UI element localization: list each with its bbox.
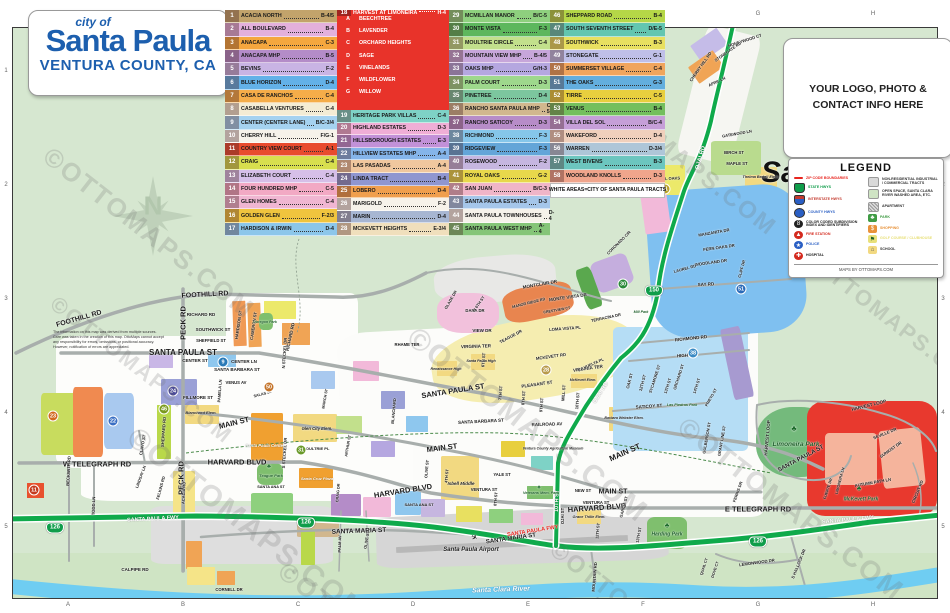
index-row-leader (409, 223, 431, 232)
index-number: 8 (230, 106, 233, 112)
index-row-number: 3 (225, 37, 239, 49)
index-row-number: 51 (550, 76, 564, 88)
map-label: SANTA PAULA ST (149, 349, 217, 357)
index-row: 24LINDA TRACTB-4 (337, 173, 449, 186)
subdivision-number-badge: 9 (218, 357, 229, 368)
index-row-ref: D-3 (538, 196, 550, 208)
index-row: 45SANTA PAULA WEST MHPA-4 (449, 223, 550, 236)
map-label: Limoneira Park (773, 442, 820, 449)
index-row-number: 11 (225, 143, 239, 155)
index-row-name: ANACAPA (239, 37, 267, 49)
index-row-ref: D-4 (325, 76, 337, 88)
index-row-name: OAKS MHP (463, 63, 494, 75)
legend-item: ★POLICE (794, 241, 864, 249)
index-row-name: WOODLAND KNOLLS (564, 170, 621, 182)
legend-item: ZIP CODE BOUNDARIES (794, 177, 864, 181)
index-row-number: 6 (225, 76, 239, 88)
index-row-ref: A-4 (539, 223, 550, 235)
index-row-leader (592, 143, 648, 152)
index-note: WHITE AREAS=CITY OF SANTA PAULA TRACTS (550, 183, 665, 198)
index-row-name: WAKEFORD (564, 130, 597, 142)
legend-item-label: COLOR CODED SUBDIVISION INDEX AND IDENTI… (806, 221, 864, 229)
map-label: VENUS AV (226, 381, 247, 385)
index-number: 4 (230, 53, 233, 59)
legend-item: APARTMENT (868, 202, 938, 212)
index-row-leader (503, 23, 537, 32)
index-row-ref: B-4 (437, 173, 449, 185)
map-label: SANTA ANA ST (257, 486, 285, 490)
map-label: SAY RD (698, 282, 715, 287)
subdivision-number-badge: 31 (296, 445, 307, 456)
index-row-number: 21 (337, 135, 351, 147)
hospital-icon: ✚ (794, 252, 803, 260)
index-row-ref: A-4 (437, 148, 449, 160)
index-row-ref: C-5 (653, 90, 665, 102)
index-row-name: THE OAKS (564, 76, 593, 88)
index-row: 16GOLDEN GLENF-2/3 (225, 209, 337, 222)
map-label: McKevett Elem. (570, 379, 597, 383)
index-number: 10 (229, 133, 236, 139)
line-icon (794, 177, 803, 179)
index-number: 51 (554, 80, 561, 86)
subdivision-number-badge: 22 (108, 416, 119, 427)
index-row: 33OAKS MHPG/H-3 (449, 63, 550, 76)
index-row-ref: F-2 (539, 156, 550, 168)
index-row-name: ALL BOULEVARD (239, 23, 286, 35)
index-row-number: 30 (449, 23, 463, 35)
hwy-shield: 126 (749, 537, 767, 548)
index-row-ref: F-3 (539, 130, 550, 142)
index-row-number: 37 (449, 116, 463, 128)
index-row-name: HILLVIEW ESTATES MHP (351, 148, 416, 160)
trail-dashed (296, 239, 300, 333)
legend-item-label: STATE HWYS (808, 186, 831, 190)
index-harvest-subrow: BLAVENDER (337, 28, 449, 40)
grid-letter: C (296, 602, 300, 608)
index-number: 21 (341, 138, 348, 144)
index-row-name: LAS PASADAS (351, 160, 391, 172)
grid-number: 4 (4, 410, 7, 416)
index-number: 18 (337, 10, 351, 16)
shopping-icon: $ (868, 225, 877, 233)
index-row-ref: D-4 (437, 211, 449, 223)
index-row-leader (284, 10, 319, 19)
index-row: 36RANCHO SANTA PAULA MHPC-5 (449, 103, 550, 116)
index-row-name: HERITAGE PARK VILLAS (351, 110, 416, 122)
map-label: Las Piedras Park (667, 404, 698, 408)
index-row-ref: F/G-1 (320, 130, 337, 142)
index-row-ref: C-3 (325, 37, 337, 49)
index-row: 13ELIZABETH COURTC-4 (225, 170, 337, 183)
index-row-name: MOUNTAIN VIEW MHP (463, 50, 521, 62)
index-row-number: 48 (550, 37, 564, 49)
index-row-ref: C-4 (325, 170, 337, 182)
index-row: 38RICHMONDF-3 (449, 130, 550, 143)
index-number: 15 (229, 199, 236, 205)
index-subletter: D (337, 53, 359, 65)
index-row: 11COUNTRY VIEW COURTA-1 (225, 143, 337, 156)
title-city-name: Santa Paula (29, 23, 227, 59)
index-number: 55 (554, 133, 561, 139)
index-row-number: 46 (550, 10, 564, 22)
contact-placeholder-text: YOUR LOGO, PHOTO & CONTACT INFO HERE (788, 82, 948, 114)
grid-letter: H (871, 11, 875, 17)
index-harvest-subrow: DSAGE (337, 53, 449, 65)
index-row-leader (497, 143, 537, 152)
index-row-ref: D-3 (653, 170, 665, 182)
index-number: 37 (453, 120, 460, 126)
index-row-number: 10 (225, 130, 239, 142)
map-label: PECK RD (179, 306, 187, 340)
index-number: 46 (554, 13, 561, 19)
index-row: 48SOUTHWICKB-3 (550, 37, 665, 50)
index-row-name: BEVINS (239, 63, 261, 75)
index-row-leader (496, 63, 531, 72)
index-number: 32 (453, 53, 460, 59)
index-row-number: 17 (225, 223, 239, 235)
index-row: 15GLEN HOMESC-4 (225, 196, 337, 209)
index-row: 53VENUSB-4 (550, 103, 665, 116)
index-row-name: CHERRY HILL (239, 130, 276, 142)
index-row: 6BLUE HORIZOND-4 (225, 76, 337, 89)
index-number: 11 (229, 146, 235, 152)
index-row: 20HIGHLAND ESTATESD-3 (337, 123, 449, 136)
index-row-name: SANTA PAULA TOWNHOUSES (463, 209, 542, 221)
index-row-leader (384, 198, 436, 207)
map-label: RICHARD RD (187, 313, 216, 318)
index-row-number: 14 (225, 183, 239, 195)
index-row-name: LINDA TRACT (351, 173, 388, 185)
legend: LEGEND ZIP CODE BOUNDARIESSTATE HWYSINTE… (788, 158, 944, 278)
index-row: 5BEVINSF-2 (225, 63, 337, 76)
index-subname: VINELANDS (359, 65, 390, 77)
index-number: 17 (229, 226, 236, 232)
legend-title: LEGEND (794, 162, 938, 174)
index-row: 8CASABELLA VENTURESC-4 (225, 103, 337, 116)
index-row: 26MARIGOLDF-2 (337, 198, 449, 211)
index-row-ref: B-4 (653, 10, 665, 22)
index-row-number: 12 (225, 156, 239, 168)
index-harvest-subrow: CORCHARD HEIGHTS (337, 40, 449, 52)
index-row-name: MARIN (351, 211, 370, 223)
index-row-leader (502, 170, 536, 179)
index-row: 58WOODLAND KNOLLSD-3 (550, 170, 665, 183)
index-row: 10CHERRY HILLF/G-1 (225, 130, 337, 143)
index-row-name: STONEGATE (564, 50, 598, 62)
index-row: 2ALL BOULEVARDB-4 (225, 23, 337, 36)
index-row: 23LAS PASADASA-4 (337, 160, 449, 173)
index-row-leader (605, 156, 652, 165)
index-row-name: SUMMERSET VILLAGE (564, 63, 624, 75)
index-number: 36 (453, 106, 460, 112)
index-row-number: 42 (449, 183, 463, 195)
index-row-name: SANTA PAULA ESTATES (463, 196, 527, 208)
index-row-name: LOBERO (351, 186, 376, 198)
index-row-ref: B/C-5 (533, 10, 550, 22)
grid-number: 3 (4, 296, 7, 302)
index-row-name: HARDISON & IRWIN (239, 223, 292, 235)
index-row-leader (517, 10, 531, 19)
index-row-number: 24 (337, 173, 351, 185)
index-number: 1 (230, 13, 233, 19)
index-row-ref: D-3/4 (649, 143, 665, 155)
index-row-leader (544, 209, 547, 218)
swatch-hatch-icon (868, 202, 879, 212)
index-row-number: 20 (337, 123, 351, 135)
map-label: YALE ST (493, 473, 510, 477)
index-number: 35 (453, 93, 460, 99)
hwy-shield: 126 (46, 523, 64, 534)
index-row-leader (307, 116, 313, 125)
index-row-name: MOULTRIE CIRCLE (463, 37, 513, 49)
circle-number-icon: 8 (794, 220, 803, 228)
index-row: 35PINETREED-4 (449, 90, 550, 103)
index-row: 1ACACIA NORTHB-4/5 (225, 10, 337, 23)
index-row-ref: F-3 (539, 143, 550, 155)
index-row-leader (542, 103, 545, 112)
index-row: 29MCMILLAN MANORB/C-5 (449, 10, 550, 23)
index-number: 39 (453, 146, 460, 152)
index-row: 57WEST BIVENSB-3 (550, 156, 665, 169)
legend-item-label: APARTMENT (882, 205, 904, 209)
index-row-number: 23 (337, 160, 351, 172)
index-number: 24 (341, 176, 348, 182)
index-row-ref: F-2 (326, 63, 337, 75)
index-number: 45 (453, 226, 460, 232)
swatch-icon (868, 177, 879, 187)
index-row: 37RANCHO SATICOYD-3 (449, 116, 550, 129)
index-row-leader (515, 116, 537, 125)
police-icon: ★ (794, 241, 803, 249)
index-column: 29MCMILLAN MANORB/C-530MONTE VISTAF-331M… (449, 10, 550, 236)
index-row-number: 52 (550, 90, 564, 102)
map-label: SANTA BARBARA ST (214, 368, 260, 373)
legend-item-label: HOSPITAL (806, 254, 824, 258)
index-row-ref: D-3 (538, 76, 550, 88)
map-label: CENTER ST (182, 359, 208, 364)
index-row-number: 53 (550, 103, 564, 115)
index-number: 33 (453, 66, 460, 72)
index-row-leader (282, 209, 320, 218)
swatch-icon (868, 189, 879, 199)
index-harvest-block: 18HARVEST AT LIMONEIRAH-4ABEECHTREEBLAVE… (337, 10, 449, 110)
subdivision-number-badge: 51 (736, 284, 747, 295)
legend-item-label: COUNTY HWYS (808, 211, 835, 215)
index-row-number: 26 (337, 198, 351, 210)
index-number: 44 (453, 213, 460, 219)
index-number: 7 (230, 93, 233, 99)
index-row-number: 33 (449, 63, 463, 75)
grid-letter: A (66, 602, 70, 608)
subdivision-number-badge: 38 (688, 348, 699, 359)
index-row-number: 49 (550, 50, 564, 62)
index-row-ref: C-4 (325, 103, 337, 115)
index-row-number: 7 (225, 90, 239, 102)
index-row-name: ROSEWOOD (463, 156, 497, 168)
index-row: 49STONEGATEG-1 (550, 50, 665, 63)
index-row: 56WARREND-3/4 (550, 143, 665, 156)
index-row: 3ANACAPAC-3 (225, 37, 337, 50)
index-row-number: 56 (550, 143, 564, 155)
index-row-name: TIRRE (564, 90, 582, 102)
hwy-shield: 150 (645, 286, 663, 297)
index-row-number: 38 (449, 130, 463, 142)
map-label: SOUTHWICK ST (196, 328, 231, 333)
index-row-name: FOUR HUNDRED MHP (239, 183, 297, 195)
index-number: 27 (341, 214, 348, 220)
index-row: 41ROYAL OAKSG-2 (449, 170, 550, 183)
index-row-name: HIGHLAND ESTATES (351, 123, 406, 135)
index-number: 13 (229, 173, 236, 179)
grid-number: 3 (941, 296, 944, 302)
index-row-name: ANACAPA MHP (239, 50, 280, 62)
index-row-number: 44 (449, 209, 463, 221)
index-row-leader (523, 50, 532, 59)
shield-interstate-icon (794, 195, 805, 205)
legend-item-label: GOLF COURSE / CLUBHOUSE (880, 237, 932, 241)
title-county: VENTURA COUNTY, CA (29, 57, 227, 74)
index-number: 54 (554, 120, 561, 126)
index-row-leader (390, 173, 435, 182)
index-row-name: PALM COURT (463, 76, 500, 88)
index-row-leader (418, 148, 435, 157)
index-row-number: 5 (225, 63, 239, 75)
index-row: 34PALM COURTD-3 (449, 76, 550, 89)
legend-item-label: POLICE (806, 243, 819, 247)
index-number: 47 (554, 26, 561, 32)
index-row-ref: E-3/4 (433, 223, 449, 235)
shield-state-icon (794, 183, 805, 193)
school-icon: ⌂ (868, 246, 877, 254)
park-icon: ♣ (868, 214, 877, 222)
map-label: Thelma Bedell Elem. (743, 176, 780, 180)
index-subname: WILLOW (359, 89, 381, 101)
index-row-number: 32 (449, 50, 463, 62)
subdivision-number-badge: 30 (618, 279, 629, 290)
index-row-leader (260, 156, 323, 165)
index-row-name: WARREN (564, 143, 590, 155)
index-row-ref: D-4 (538, 90, 550, 102)
index-row-name: GOLDEN GLEN (239, 209, 280, 221)
index-row: 39RIDGEVIEWF-3 (449, 143, 550, 156)
map-label: Mill Park (634, 311, 649, 315)
index-row-leader (496, 130, 537, 139)
grid-number: 5 (941, 524, 944, 530)
index-row-name: ELIZABETH COURT (239, 170, 291, 182)
index-row-leader (515, 37, 536, 46)
index-row-ref: D-4 (653, 130, 665, 142)
index-row-leader (586, 103, 651, 112)
index-row-number: 36 (449, 103, 463, 115)
map-label: Grace Thille Elem. (573, 516, 606, 520)
index-row-name: CENTER (CENTER LANE) (239, 116, 305, 128)
index-subname: WILDFLOWER (359, 77, 395, 89)
index-row-number: 19 (337, 110, 351, 122)
legend-item: OPEN SPACE, SANTA CLARA RIVER WASHED ARE… (868, 189, 938, 199)
index-row: 19HERITAGE PARK VILLASC-4 (337, 110, 449, 123)
index-row-leader (288, 23, 324, 32)
index-row-name: MCMILLAN MANOR (463, 10, 515, 22)
index-row-leader (584, 90, 652, 99)
index-number: 57 (554, 159, 561, 165)
index-row: 31MOULTRIE CIRCLEC-4 (449, 37, 550, 50)
legend-item: ⚑GOLF COURSE / CLUBHOUSE (868, 235, 938, 243)
grid-letter: D (411, 602, 415, 608)
grid-number: 4 (941, 410, 944, 416)
index-row: 28MCKEVETT HEIGHTSE-3/4 (337, 223, 449, 236)
legend-item: 8COLOR CODED SUBDIVISION INDEX AND IDENT… (794, 220, 864, 228)
index-row-name: PINETREE (463, 90, 492, 102)
index-number: 29 (453, 13, 460, 19)
index-row-ref: D-3 (437, 123, 449, 135)
index-row-name: CASA DE RANCHOS (239, 90, 293, 102)
index-row-number: 58 (550, 170, 564, 182)
index-row: 25LOBEROD-4 (337, 186, 449, 199)
map-label: Santa Paula Airport (443, 547, 498, 553)
index-subletter: C (337, 40, 359, 52)
map-label: BIRCH ST (724, 151, 744, 155)
index-row-name: GLEN HOMES (239, 196, 277, 208)
index-subletter: F (337, 77, 359, 89)
index-number: 56 (554, 146, 561, 152)
index-row-name: VENUS (564, 103, 584, 115)
index-row-ref: C-4 (437, 110, 449, 122)
index-row-leader (294, 223, 324, 232)
index-row-ref: B/C-3/4 (316, 116, 337, 128)
index-row-ref: B-4 (325, 23, 337, 35)
index-row-leader (423, 135, 436, 144)
index-row-ref: D-4 (325, 223, 337, 235)
index-row-leader (304, 143, 323, 152)
index-row-name: SHEPPARD ROAD (564, 10, 612, 22)
contact-placeholder-box: YOUR LOGO, PHOTO & CONTACT INFO HERE (783, 38, 950, 158)
index-row-name: RANCHO SATICOY (463, 116, 513, 128)
subdivision-number-badge: 11 (29, 485, 40, 496)
index-number: 16 (229, 213, 236, 219)
index-row-name: ROYAL OAKS (463, 170, 500, 182)
map-label: Isbell Middle (447, 482, 474, 487)
index-subletter: A (337, 16, 359, 28)
grid-number: 1 (4, 68, 7, 74)
index-row: 14FOUR HUNDRED MHPC-5 (225, 183, 337, 196)
disclaimer-text: The information on this map was derived … (53, 330, 165, 350)
index-row-leader (279, 196, 324, 205)
index-row-number: 47 (550, 23, 564, 35)
index-row-number: 55 (550, 130, 564, 142)
index-row-leader (283, 76, 323, 85)
map-label: Santa Paula Center (245, 444, 284, 448)
legend-item-label: OPEN SPACE, SANTA CLARA RIVER WASHED ARE… (882, 190, 938, 198)
legend-item: NON-RESIDENTIAL INDUSTRIAL / COMMERCIAL … (868, 177, 938, 187)
index-row-number: 2 (225, 23, 239, 35)
index-row: 22HILLVIEW ESTATES MHPA-4 (337, 148, 449, 161)
index-row-name: MCKEVETT HEIGHTS (351, 223, 407, 235)
index-row: 46SHEPPARD ROADB-4 (550, 10, 665, 23)
index-row-leader (372, 211, 435, 220)
index-row-leader (614, 10, 651, 19)
index-row-ref: F-3 (539, 23, 550, 35)
index-row-leader (635, 23, 646, 32)
legend-item-label: INTERSTATE HWYS (808, 198, 842, 202)
fire-icon: ▲ (794, 231, 803, 239)
index-row-ref: C-5 (325, 183, 337, 195)
index-number: 50 (554, 66, 561, 72)
index-row-leader (393, 160, 436, 169)
index-row-name: RICHMOND (463, 130, 494, 142)
subdivision-number-badge: 23 (48, 411, 59, 422)
index-row-ref: B/C-4 (648, 116, 665, 128)
index-row-leader (494, 183, 531, 192)
